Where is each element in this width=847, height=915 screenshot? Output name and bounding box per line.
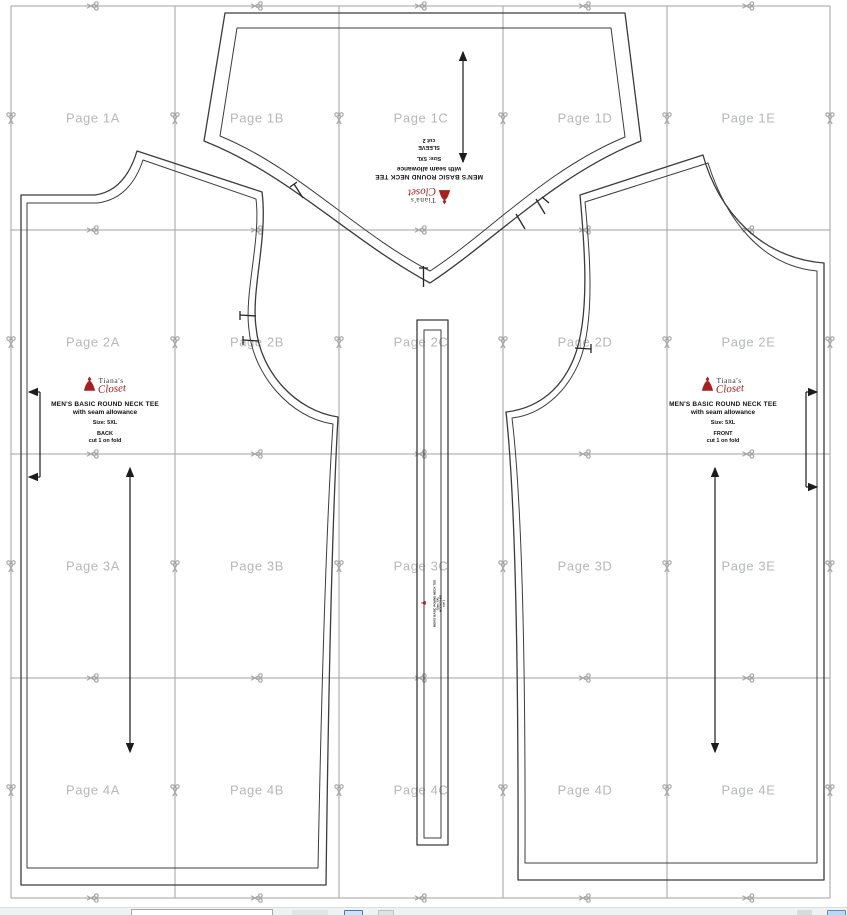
brand-logo: Tiana's Closet (37, 376, 173, 400)
page-label: Page 1E (721, 111, 775, 126)
taskbar-search-input[interactable] (131, 909, 273, 915)
piece-subtitle: with seam allowance (361, 164, 497, 172)
page-label: Page 3D (558, 559, 613, 574)
page-label: Page 1C (394, 111, 449, 126)
brand-logo: Tiana's Closet (361, 181, 497, 205)
brand-name-script: Closet (98, 382, 127, 398)
front-piece-label: Tiana's Closet MEN'S BASIC ROUND NECK TE… (655, 376, 791, 445)
front-piece-inner-outline (512, 163, 817, 863)
dress-icon (421, 601, 428, 606)
piece-name: BACK (37, 431, 173, 438)
scissors-icon (579, 674, 590, 682)
taskbar (0, 907, 847, 915)
brand-name-script: Closet (407, 183, 436, 199)
page-label: Page 1D (558, 111, 613, 126)
piece-name: SLEEVE (361, 143, 497, 150)
dress-icon (438, 185, 451, 205)
scissors-icon (663, 785, 671, 796)
piece-cut-instruction: cut 1 on fold (37, 438, 173, 445)
scissors-icon (742, 450, 753, 458)
scissors-icon (7, 337, 15, 348)
sewing-pattern-page: Page 1APage 1BPage 1CPage 1DPage 1EPage … (0, 0, 847, 915)
scissors-icon (87, 226, 98, 234)
piece-cut-instruction: cut 1 (443, 577, 446, 629)
scissors-icon (251, 2, 262, 10)
page-label: Page 1B (230, 111, 284, 126)
scissors-icon (826, 337, 834, 348)
scissors-icon (826, 113, 834, 124)
piece-cut-instruction: cut 1 on fold (655, 438, 791, 445)
scissors-icon (7, 113, 15, 124)
page-label: Page 2B (230, 335, 284, 350)
page-label: Page 4B (230, 783, 284, 798)
scissors-icon (335, 561, 343, 572)
scissors-icon (7, 785, 15, 796)
page-label: Page 3A (66, 559, 120, 574)
scissors-icon (251, 450, 262, 458)
scissors-icon (742, 894, 753, 902)
scissors-icon (415, 450, 426, 458)
page-label: Page 4D (558, 783, 613, 798)
piece-title: MEN'S BASIC ROUND NECK TEE (37, 401, 173, 409)
brand-logo: Tiana's Closet (655, 376, 791, 400)
scissors-icon (663, 561, 671, 572)
piece-size: Size: 5XL (655, 420, 791, 427)
scissors-icon (171, 561, 179, 572)
scissors-icon (663, 337, 671, 348)
sleeve-piece-label: Tiana's Closet MEN'S BASIC ROUND NECK TE… (361, 136, 497, 205)
taskbar-app-icon[interactable] (797, 910, 812, 915)
scissors-icon (579, 894, 590, 902)
scissors-icon (87, 894, 98, 902)
back-piece-label: Tiana's Closet MEN'S BASIC ROUND NECK TE… (37, 376, 173, 445)
scissors-icon (171, 785, 179, 796)
dress-icon (701, 376, 714, 396)
scissors-icon (579, 2, 590, 10)
piece-size: Size: 5XL (361, 154, 497, 161)
brand-name-script: Closet (716, 382, 745, 398)
scissors-icon (335, 337, 343, 348)
scissors-icon (826, 561, 834, 572)
page-label: Page 4E (721, 783, 775, 798)
scissors-icon (415, 894, 426, 902)
scissors-icon (826, 785, 834, 796)
piece-subtitle: with seam allowance (37, 409, 173, 417)
back-piece-outer-outline (21, 151, 338, 885)
page-label: Page 4A (66, 783, 120, 798)
page-label: Page 3C (394, 559, 449, 574)
page-label: Page 2E (721, 335, 775, 350)
piece-size: Size: 5XL (37, 420, 173, 427)
scissors-icon (579, 226, 590, 234)
taskbar-app-icon[interactable] (378, 910, 394, 915)
scissors-icon (742, 226, 753, 234)
scissors-icon (499, 113, 507, 124)
page-label: Page 2A (66, 335, 120, 350)
scissors-icon (7, 561, 15, 572)
piece-subtitle: with seam allowance (655, 409, 791, 417)
scissors-icon (171, 337, 179, 348)
scissors-icon (415, 674, 426, 682)
piece-cut-instruction: cut 2 (361, 136, 497, 143)
taskbar-tray-area[interactable] (292, 910, 328, 915)
piece-title: MEN'S BASIC ROUND NECK TEE (361, 172, 497, 180)
scissors-icon (499, 785, 507, 796)
neckband-piece-label: MEN'S BASIC ROUND NECK TEE Size: 5XL NEC… (416, 577, 447, 629)
scissors-icon (251, 674, 262, 682)
back-piece-inner-outline (27, 160, 333, 868)
scissors-icon (663, 113, 671, 124)
taskbar-app-icon[interactable] (827, 910, 846, 915)
page-label: Page 3B (230, 559, 284, 574)
scissors-icon (335, 113, 343, 124)
scissors-icon (171, 113, 179, 124)
scissors-icon (251, 894, 262, 902)
scissors-icon (499, 561, 507, 572)
scissors-icon (415, 226, 426, 234)
piece-name: FRONT (655, 431, 791, 438)
page-label: Page 2D (558, 335, 613, 350)
dress-icon (83, 376, 96, 396)
page-label: Page 4C (394, 783, 449, 798)
piece-title: MEN'S BASIC ROUND NECK TEE (655, 401, 791, 409)
scissors-icon (499, 337, 507, 348)
page-label: Page 3E (721, 559, 775, 574)
scissors-icon (579, 450, 590, 458)
page-label: Page 1A (66, 111, 120, 126)
scissors-icon (415, 2, 426, 10)
scissors-icon (335, 785, 343, 796)
notch-marks (240, 182, 591, 353)
scissors-icon (742, 2, 753, 10)
scissors-icon (251, 226, 262, 234)
front-piece-outer-outline (506, 155, 824, 880)
taskbar-app-icon[interactable] (344, 910, 363, 915)
scissors-icon (87, 450, 98, 458)
scissors-icon (87, 2, 98, 10)
scissors-icon (87, 674, 98, 682)
page-label: Page 2C (394, 335, 449, 350)
scissors-icon (742, 674, 753, 682)
